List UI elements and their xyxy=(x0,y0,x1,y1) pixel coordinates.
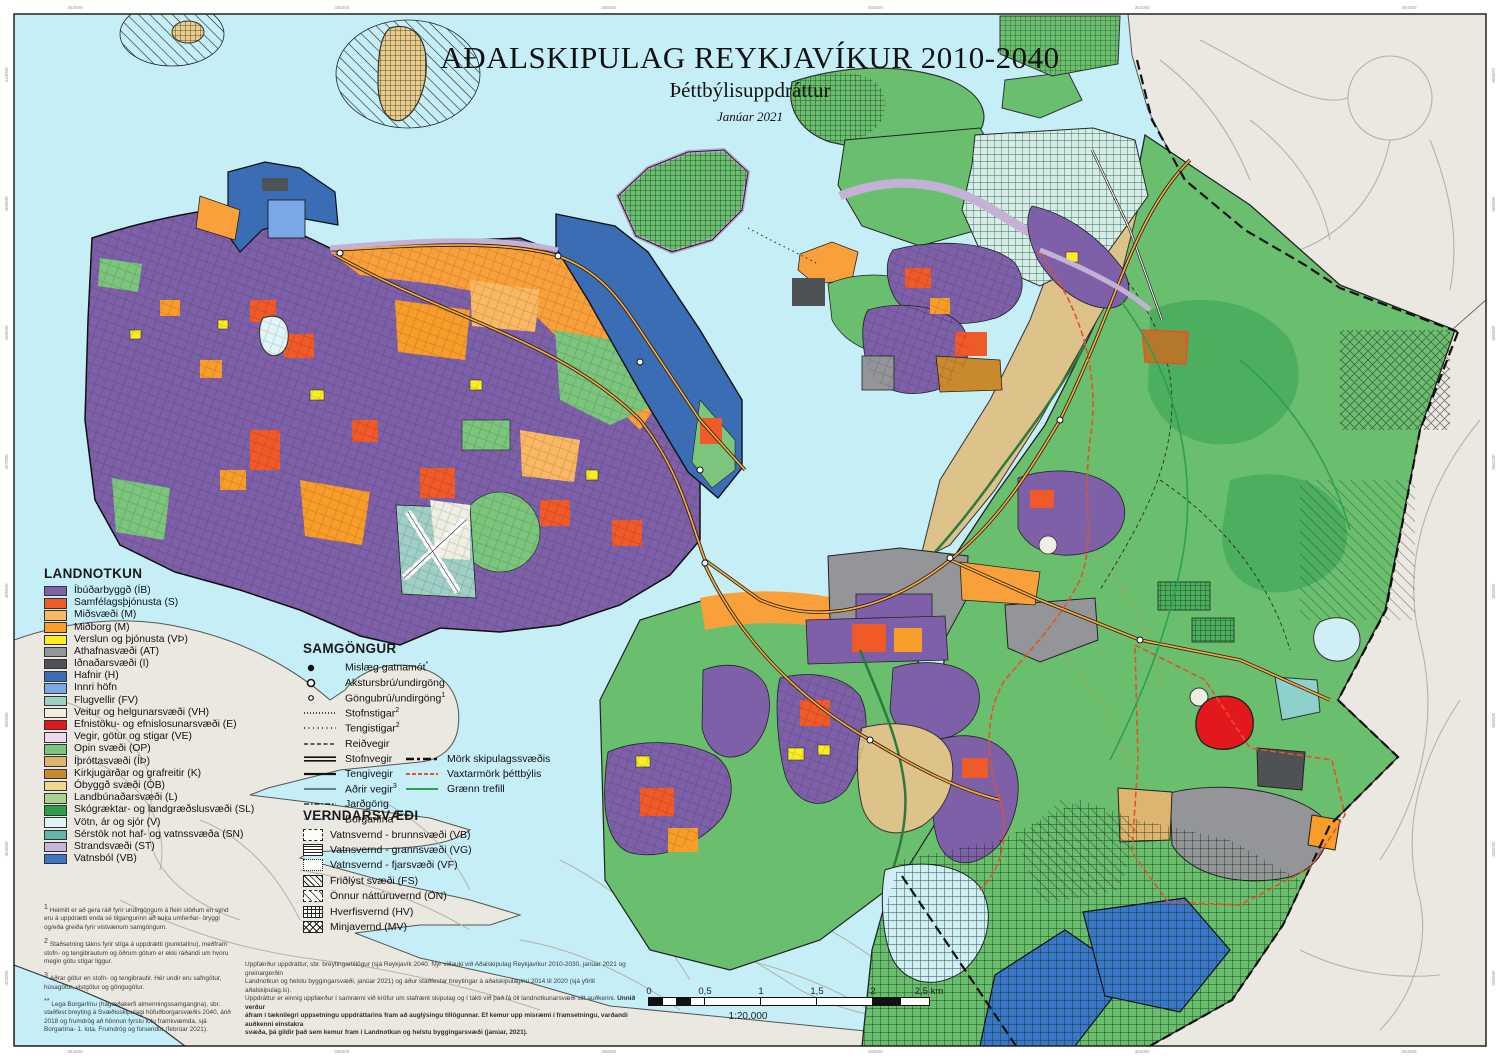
landuse-legend-label: Íbúðarbyggð (ÍB) xyxy=(74,586,151,596)
transport-glyph-thin xyxy=(303,784,337,794)
legend-landnotkun: LANDNOTKUN Íbúðarbyggð (ÍB)Samfélagsþjón… xyxy=(44,566,254,865)
scalebar-label: 1,5 xyxy=(810,986,823,997)
scalebar-label: 2,5 km xyxy=(915,986,944,997)
landuse-color-chip xyxy=(44,720,67,731)
protection-legend-item: Önnur náttúruvernd (ÖN) xyxy=(303,889,472,904)
transport-glyph-wrap xyxy=(303,663,339,673)
transport-legend-label: Göngubrú/undirgöng1 xyxy=(345,692,445,705)
scalebar-cell xyxy=(691,998,705,1005)
protection-pattern-chip xyxy=(303,859,323,871)
protection-legend-label: Friðlýst svæði (FS) xyxy=(330,875,418,887)
grid-coordinate-label: 358000 xyxy=(601,5,617,10)
transport-glyph-wrap xyxy=(405,754,441,764)
grid-coordinate-label: 407000 xyxy=(4,454,9,470)
landuse-legend-item: Íbúðarbyggð (ÍB) xyxy=(44,585,254,597)
scalebar-label: 0 xyxy=(646,986,651,997)
grid-coordinate-label: 403000 xyxy=(1491,970,1496,986)
protection-pattern-chip xyxy=(303,906,323,918)
landuse-color-chip xyxy=(44,830,67,841)
landuse-color-chip xyxy=(44,586,67,597)
protection-pattern-chip xyxy=(303,890,323,902)
scalebar-labels: 00,511,522,5 km xyxy=(648,986,948,997)
transport-legend-label: Tengistigar2 xyxy=(345,722,400,735)
transport-glyph-solid-green xyxy=(405,784,439,794)
transport-glyph-circle xyxy=(303,678,337,688)
landuse-legend-item: Athafnasvæði (AT) xyxy=(44,646,254,658)
transport-glyph-wrap xyxy=(405,769,441,779)
landuse-color-chip xyxy=(44,598,67,609)
landuse-legend-item: Innri höfn xyxy=(44,683,254,695)
revision-note-line: Landnotkun og helstu byggingarsvæði, jan… xyxy=(245,978,641,995)
landuse-legend-label: Innri höfn xyxy=(74,683,117,693)
landuse-color-chip xyxy=(44,793,67,804)
protection-legend-item: Vatnsvernd - brunnsvæði (VB) xyxy=(303,827,472,842)
protection-legend-item: Vatnsvernd - grannsvæði (VG) xyxy=(303,842,472,857)
protection-legend-label: Vatnsvernd - brunnsvæði (VB) xyxy=(330,829,470,841)
landuse-legend-item: Strandsvæði (ST) xyxy=(44,841,254,853)
grid-coordinate-label: 408000 xyxy=(4,325,9,341)
landuse-legend-label: Verslun og þjónusta (VÞ) xyxy=(74,635,188,645)
protection-legend-item: Friðlýst svæði (FS) xyxy=(303,873,472,888)
protection-legend-label: Vatnsvernd - grannsvæði (VG) xyxy=(330,844,472,856)
landuse-legend-label: Skógræktar- og landgræðslusvæði (SL) xyxy=(74,805,254,815)
grid-coordinate-label: 404000 xyxy=(4,841,9,857)
legend-samgongur: SAMGÖNGUR Mislæg gatnamót*Akstursbrú/und… xyxy=(303,641,445,827)
landuse-legend-label: Landbúnaðarsvæði (L) xyxy=(74,793,178,803)
transport-glyph-dots-dense xyxy=(303,708,337,718)
scalebar-cell xyxy=(677,998,691,1005)
landuse-legend-label: Miðsvæði (M) xyxy=(74,610,136,620)
landuse-legend-item: Veitur og helgunarsvæði (VH) xyxy=(44,707,254,719)
landuse-color-chip xyxy=(44,781,67,792)
transport-legend-label: Mörk skipulagssvæðis xyxy=(447,753,550,765)
footnote: 2 Staðsetning tákns fyrir stíga á uppdræ… xyxy=(44,937,234,966)
footnote: 3 Aðrar götur en stofn- og tengibrautir.… xyxy=(44,971,234,992)
landuse-legend-label: Veitur og helgunarsvæði (VH) xyxy=(74,708,209,718)
landuse-legend-item: Efnistöku- og efnislosunarsvæði (E) xyxy=(44,719,254,731)
grid-coordinate-label: 409000 xyxy=(4,196,9,212)
landuse-legend-item: Miðborg (M) xyxy=(44,622,254,634)
transport-glyph-dash-red xyxy=(405,769,439,779)
revision-note-line: Uppfærður uppdráttur, sbr. breytingartil… xyxy=(245,961,641,978)
grid-coordinate-label: 410000 xyxy=(4,67,9,83)
transport-glyph-wrap xyxy=(303,739,339,749)
landuse-legend-label: Óbyggð svæði (ÓB) xyxy=(74,781,165,791)
landuse-legend-item: Opin svæði (OP) xyxy=(44,743,254,755)
landuse-legend-label: Strandsvæði (ST) xyxy=(74,842,155,852)
legend-samgongur-title: SAMGÖNGUR xyxy=(303,641,445,656)
boundary-legend-item: Vaxtarmörk þéttbýlis xyxy=(405,766,550,781)
protection-pattern-chip xyxy=(303,875,323,887)
scale-ratio: 1:20.000 xyxy=(648,1011,848,1022)
landuse-legend-label: Sérstök not haf- og vatnssvæða (SN) xyxy=(74,830,243,840)
transport-glyph-dots xyxy=(303,723,337,733)
landuse-legend-label: Flugvellir (FV) xyxy=(74,696,138,706)
landuse-legend-label: Hafnir (H) xyxy=(74,671,119,681)
boundary-legend-item: Grænn trefill xyxy=(405,781,550,796)
landuse-legend-item: Iðnaðarsvæði (I) xyxy=(44,658,254,670)
landuse-legend-label: Iðnaðarsvæði (I) xyxy=(74,659,149,669)
landuse-color-chip xyxy=(44,635,67,646)
grid-coordinate-label: 405000 xyxy=(1491,712,1496,728)
landuse-legend-item: Landbúnaðarsvæði (L) xyxy=(44,792,254,804)
protection-pattern-chip xyxy=(303,921,323,933)
planning-map-page: { "title": { "main": "AÐALSKIPULAG REYKJ… xyxy=(0,0,1500,1060)
landuse-legend-item: Kirkjugarðar og grafreitir (K) xyxy=(44,768,254,780)
landuse-legend-label: Kirkjugarðar og grafreitir (K) xyxy=(74,769,201,779)
footnote: 1 Heimilt er að gera ráð fyrir undirgöng… xyxy=(44,903,234,932)
scalebar-label: 2 xyxy=(870,986,875,997)
scalebar-cell xyxy=(761,998,817,1005)
landuse-color-chip xyxy=(44,842,67,853)
landuse-legend-label: Íþróttasvæði (ÍÞ) xyxy=(74,757,150,767)
transport-glyph-wrap xyxy=(303,723,339,733)
grid-coordinate-label: 409000 xyxy=(1491,196,1496,212)
grid-labels-left: 4100004090004080004070004060004050004040… xyxy=(4,67,9,986)
scalebar-cell xyxy=(873,998,901,1005)
revision-note-line: svæða, þá gildir það sem kemur fram í La… xyxy=(245,1029,641,1038)
grid-coordinate-label: 410000 xyxy=(1491,67,1496,83)
grid-coordinate-label: 408000 xyxy=(1491,325,1496,341)
landuse-color-chip xyxy=(44,708,67,719)
landuse-legend-label: Vatnsból (VB) xyxy=(74,854,137,864)
protection-legend-label: Önnur náttúruvernd (ÖN) xyxy=(330,890,447,902)
transport-legend-label: Vaxtarmörk þéttbýlis xyxy=(447,768,541,780)
landuse-legend-item: Óbyggð svæði (ÓB) xyxy=(44,780,254,792)
transport-legend-label: Reiðvegir xyxy=(345,738,389,750)
transport-glyph-dot xyxy=(303,663,337,673)
landuse-color-chip xyxy=(44,671,67,682)
landuse-legend-label: Samfélagsþjónusta (S) xyxy=(74,598,178,608)
transport-legend-label: Grænn trefill xyxy=(447,783,505,795)
grid-coordinate-label: 354000 xyxy=(67,5,83,10)
grid-coordinate-label: 406000 xyxy=(4,583,9,599)
transport-legend-item: Stofnstigar2 xyxy=(303,706,445,721)
landuse-legend-item: Skógræktar- og landgræðslusvæði (SL) xyxy=(44,804,254,816)
protection-legend-item: Minjavernd (MV) xyxy=(303,919,472,934)
grid-coordinate-label: 406000 xyxy=(1491,583,1496,599)
transport-glyph-wrap xyxy=(303,754,339,764)
transport-glyph-dashed xyxy=(303,739,337,749)
grid-coordinate-label: 360000 xyxy=(868,5,884,10)
grid-coordinate-label: 356000 xyxy=(334,1049,350,1054)
revision-note-line: Uppdráttur er einnig uppfærður í samræmi… xyxy=(245,995,641,1012)
scalebar-cell xyxy=(649,998,663,1005)
legend-boundaries: Mörk skipulagssvæðisVaxtarmörk þéttbýlis… xyxy=(405,751,550,797)
transport-legend-item: Reiðvegir xyxy=(303,736,445,751)
transport-glyph-wrap xyxy=(303,784,339,794)
legend-verndarsvaedi: VERNDARSVÆÐI Vatnsvernd - brunnsvæði (VB… xyxy=(303,808,472,935)
protection-legend-item: Vatnsvernd - fjarsvæði (VF) xyxy=(303,858,472,873)
transport-legend-label: Mislæg gatnamót* xyxy=(345,661,428,674)
landuse-legend-label: Vötn, ár og sjór (V) xyxy=(74,818,160,828)
transport-glyph-wrap xyxy=(405,784,441,794)
scalebar-bar xyxy=(648,997,930,1006)
landuse-color-chip xyxy=(44,805,67,816)
landuse-legend-item: Hafnir (H) xyxy=(44,670,254,682)
landuse-color-chip xyxy=(44,659,67,670)
landuse-legend-item: Samfélagsþjónusta (S) xyxy=(44,597,254,609)
landuse-legend-item: Vötn, ár og sjór (V) xyxy=(44,817,254,829)
protection-legend-label: Hverfisvernd (HV) xyxy=(330,906,413,918)
landuse-legend-label: Athafnasvæði (AT) xyxy=(74,647,159,657)
transport-glyph-wrap xyxy=(303,678,339,688)
landuse-color-chip xyxy=(44,756,67,767)
footnote: ** Lega Borgarlínu (hágæðakerfi almennin… xyxy=(44,997,234,1034)
landuse-color-chip xyxy=(44,854,67,865)
transport-glyph-wrap xyxy=(303,769,339,779)
grid-coordinate-label: 403000 xyxy=(4,970,9,986)
protection-legend-item: Hverfisvernd (HV) xyxy=(303,904,472,919)
grid-labels-top: 354000356000358000360000362000364000 xyxy=(67,5,1417,10)
protection-pattern-chip xyxy=(303,844,323,856)
scalebar-cell xyxy=(663,998,677,1005)
legend-verndarsvaedi-title: VERNDARSVÆÐI xyxy=(303,808,472,823)
landuse-color-chip xyxy=(44,769,67,780)
footnotes: 1 Heimilt er að gera ráð fyrir undirgöng… xyxy=(44,903,234,1039)
landuse-color-chip xyxy=(44,744,67,755)
landuse-legend-item: Íþróttasvæði (ÍÞ) xyxy=(44,756,254,768)
revision-note: Uppfærður uppdráttur, sbr. breytingartil… xyxy=(245,961,641,1038)
grid-coordinate-label: 405000 xyxy=(4,712,9,728)
landuse-legend-label: Vegir, götur og stigar (VE) xyxy=(74,732,192,742)
transport-legend-label: Aðrir vegir3 xyxy=(345,783,397,796)
landuse-color-chip xyxy=(44,683,67,694)
landuse-legend-label: Efnistöku- og efnislosunarsvæði (E) xyxy=(74,720,237,730)
scalebar-cell xyxy=(705,998,761,1005)
transport-legend-label: Tengivegir xyxy=(345,768,393,780)
landuse-legend-label: Miðborg (M) xyxy=(74,623,130,633)
grid-coordinate-label: 354000 xyxy=(67,1049,83,1054)
landuse-color-chip xyxy=(44,696,67,707)
scalebar-label: 1 xyxy=(758,986,763,997)
transport-legend-label: Stofnstigar2 xyxy=(345,707,399,720)
grid-coordinate-label: 364000 xyxy=(1401,5,1417,10)
landuse-color-chip xyxy=(44,817,67,828)
landuse-color-chip xyxy=(44,622,67,633)
grid-coordinate-label: 362000 xyxy=(1135,5,1151,10)
transport-legend-item: Akstursbrú/undirgöng xyxy=(303,675,445,690)
transport-glyph-dash-long-black xyxy=(405,754,439,764)
protection-legend-label: Vatnsvernd - fjarsvæði (VF) xyxy=(330,859,458,871)
grid-labels-right: 4100004090004080004070004060004050004040… xyxy=(1491,67,1496,986)
revision-note-line: áfram í tæknilegri uppsetningu uppdrátta… xyxy=(245,1012,641,1029)
boundary-legend-item: Mörk skipulagssvæðis xyxy=(405,751,550,766)
protection-pattern-chip xyxy=(303,829,323,841)
scalebar-cell xyxy=(901,998,929,1005)
grid-labels-bottom: 354000356000358000360000362000364000 xyxy=(67,1049,1417,1054)
protection-legend-label: Minjavernd (MV) xyxy=(330,921,407,933)
grid-coordinate-label: 360000 xyxy=(868,1049,884,1054)
scalebar-label: 0,5 xyxy=(698,986,711,997)
scalebar: 00,511,522,5 km 1:20.000 xyxy=(648,986,948,1022)
quarry-area xyxy=(1196,696,1253,749)
landuse-legend-item: Vatnsból (VB) xyxy=(44,853,254,865)
landuse-color-chip xyxy=(44,647,67,658)
landuse-legend-item: Miðsvæði (M) xyxy=(44,609,254,621)
landuse-legend-item: Sérstök not haf- og vatnssvæða (SN) xyxy=(44,829,254,841)
transport-glyph-medium xyxy=(303,769,337,779)
grid-coordinate-label: 404000 xyxy=(1491,841,1496,857)
transport-legend-item: Tengistigar2 xyxy=(303,721,445,736)
landuse-color-chip xyxy=(44,610,67,621)
transport-glyph-wrap xyxy=(303,708,339,718)
grid-coordinate-label: 358000 xyxy=(601,1049,617,1054)
landuse-legend-item: Verslun og þjónusta (VÞ) xyxy=(44,634,254,646)
grid-coordinate-label: 356000 xyxy=(334,5,350,10)
landuse-legend-label: Opin svæði (OP) xyxy=(74,744,151,754)
grid-coordinate-label: 364000 xyxy=(1401,1049,1417,1054)
transport-legend-item: Mislæg gatnamót* xyxy=(303,660,445,675)
transport-legend-label: Akstursbrú/undirgöng xyxy=(345,677,445,689)
transport-glyph-wrap xyxy=(303,693,339,703)
landuse-legend-item: Flugvellir (FV) xyxy=(44,695,254,707)
transport-glyph-double xyxy=(303,754,337,764)
map-graphic: 354000356000358000360000362000364000 354… xyxy=(0,0,1500,1060)
grid-coordinate-label: 407000 xyxy=(1491,454,1496,470)
transport-legend-label: Stofnvegir xyxy=(345,753,392,765)
transport-legend-item: Göngubrú/undirgöng1 xyxy=(303,690,445,705)
grid-coordinate-label: 362000 xyxy=(1135,1049,1151,1054)
landuse-legend-item: Vegir, götur og stigar (VE) xyxy=(44,731,254,743)
transport-glyph-circle-small xyxy=(303,693,337,703)
scalebar-cell xyxy=(817,998,873,1005)
legend-landnotkun-title: LANDNOTKUN xyxy=(44,566,254,581)
landuse-color-chip xyxy=(44,732,67,743)
